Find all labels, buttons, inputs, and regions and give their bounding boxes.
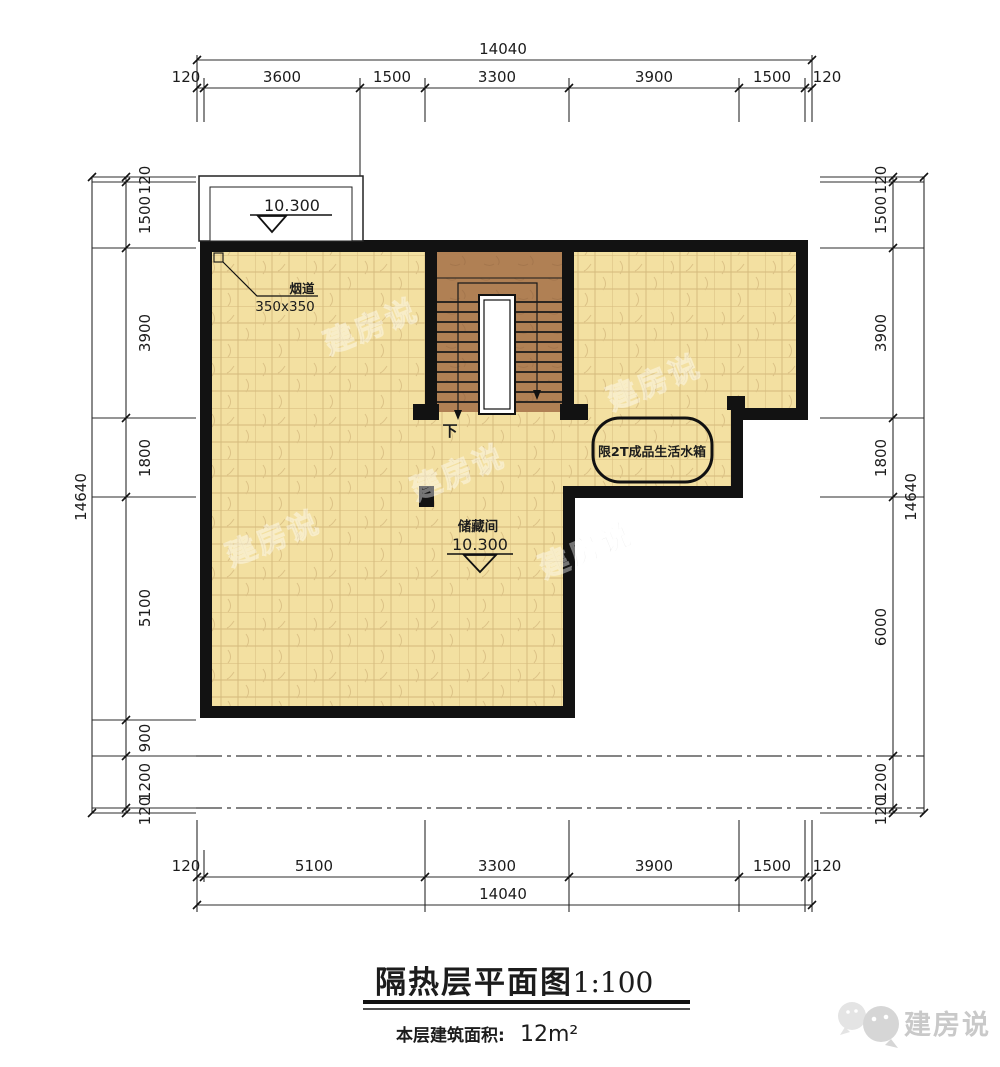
dim-bottom-seg: 3900 [635,857,673,875]
room-label: 储藏间 [457,518,499,535]
dim-bottom-seg: 1500 [753,857,791,875]
dimension-right: 14640 120 1500 3900 1800 6000 1200 120 [820,166,928,826]
drawing-title: 隔热层平面图 [375,965,573,1001]
stair-down-label: 下 [442,422,457,440]
balcony-level-value: 10.300 [264,196,320,215]
dim-top-seg: 3600 [263,68,301,86]
dim-top-seg: 1500 [373,68,411,86]
eave-lines [196,756,924,808]
dim-left-seg: 120 [136,166,154,195]
dim-right-seg: 6000 [872,608,890,646]
stair-well-inner [484,300,510,409]
dim-top-seg: 120 [813,68,842,86]
chat-bubbles-icon [838,1002,899,1048]
dimension-left: 14640 120 1500 3900 1800 5100 900 1200 1… [72,166,196,826]
floor-area-label: 本层建筑面积: [396,1025,505,1046]
dim-top-seg: 3300 [478,68,516,86]
room-level-value: 10.300 [452,535,508,554]
dim-right-overall: 14640 [902,473,920,521]
dim-right-seg: 120 [872,797,890,826]
dim-left-seg: 1800 [136,439,154,477]
dim-left-seg: 120 [136,797,154,826]
dim-top-seg: 1500 [753,68,791,86]
dim-left-seg: 3900 [136,314,154,352]
brand-logo-text: 建房说 [904,1010,991,1041]
flue-size: 350x350 [255,299,315,315]
dimension-top: 14040 120 3600 1500 3300 3900 1500 120 [172,40,842,176]
dim-left-seg: 900 [136,724,154,753]
dim-left-overall: 14640 [72,473,90,521]
floor-plan-drawing: 下 10.300 烟道 350x350 限2T成品生活水箱 [0,0,1000,1067]
flue-label: 烟道 [289,281,315,296]
dim-right-seg: 120 [872,166,890,195]
dim-bottom-seg: 5100 [295,857,333,875]
dim-left-seg: 5100 [136,589,154,627]
dim-bottom-seg: 120 [172,857,201,875]
dim-bottom-overall: 14040 [479,885,527,903]
dim-right-seg: 1200 [872,763,890,801]
floor-area-value: 12m² [520,1022,578,1047]
dim-right-seg: 1500 [872,196,890,234]
dim-right-seg: 1800 [872,439,890,477]
roof-balcony: 10.300 [199,176,363,241]
dim-top-seg: 3900 [635,68,673,86]
dim-right-seg: 3900 [872,314,890,352]
dim-left-seg: 1500 [136,196,154,234]
water-tank-label: 限2T成品生活水箱 [598,444,707,459]
drawing-scale: 1:100 [573,966,654,999]
dim-top-overall: 14040 [479,40,527,58]
title-block: 隔热层平面图 1:100 本层建筑面积: 12m² [363,965,690,1047]
floor-plan-sheet: 下 10.300 烟道 350x350 限2T成品生活水箱 [0,0,1000,1067]
dim-top-seg: 120 [172,68,201,86]
dim-bottom-seg: 120 [813,857,842,875]
dim-left-seg: 1200 [136,763,154,801]
dim-bottom-seg: 3300 [478,857,516,875]
brand-logo: 建房说 [838,1002,991,1048]
dimension-bottom: 120 5100 3300 3900 1500 120 14040 [172,820,842,912]
